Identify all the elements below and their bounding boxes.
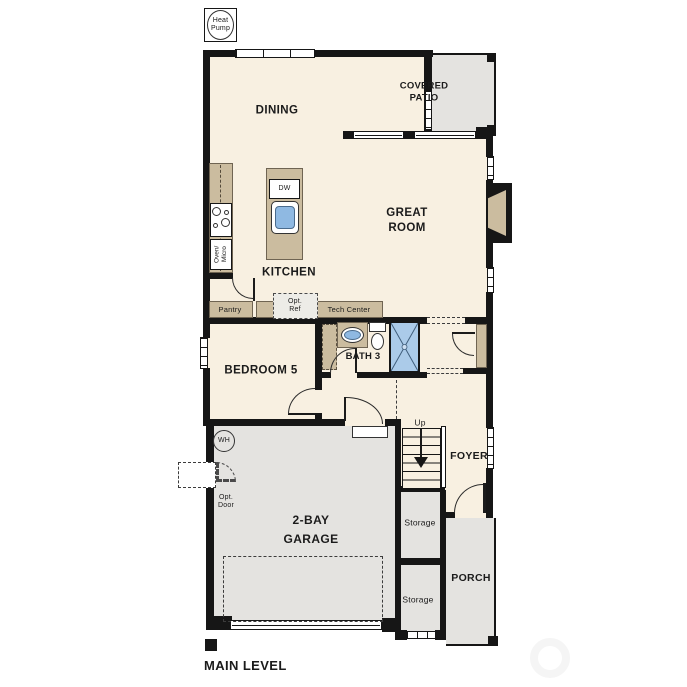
opening-greatroom-corridor (427, 317, 465, 324)
opening-hall-foyer (396, 380, 398, 419)
window-foyer (487, 427, 494, 469)
wall-garage-left (206, 426, 214, 622)
room-label-foyer: FOYER (450, 450, 488, 464)
patio-slider-left (353, 131, 404, 139)
label-dishwasher: DW (278, 185, 290, 193)
wall-corridor-right (463, 368, 488, 374)
room-label-bath-3: BATH 3 (346, 351, 381, 363)
room-label-garage: 2-BAY GARAGE (283, 511, 338, 549)
room-label-storage-lower: Storage (402, 594, 433, 605)
room-label-kitchen: KITCHEN (262, 266, 316, 281)
toilet-tank (369, 322, 386, 332)
wall-right-c (486, 292, 493, 428)
wall-left-lower (203, 368, 210, 426)
room-label-storage-upper: Storage (404, 517, 435, 528)
stairs-arrow-head (414, 457, 428, 468)
burner-2 (224, 210, 229, 215)
wall-slider-stub-mid (404, 131, 414, 139)
patio-post-top-right (487, 53, 496, 62)
burner-3 (213, 223, 218, 228)
label-tech-center: Tech Center (328, 305, 371, 315)
stairs-arrow-shaft (420, 428, 422, 459)
title-square (205, 639, 217, 651)
patio-slider-right (414, 131, 476, 139)
wall-right-a (486, 133, 493, 157)
porch-post (488, 636, 498, 646)
shower (389, 321, 420, 373)
wall-stair-west (395, 419, 401, 640)
room-label-covered-patio: COVERED PATIO (400, 81, 448, 106)
burner-1 (212, 207, 221, 216)
wall-hall-south-a (203, 419, 345, 426)
label-water-heater: WH (218, 437, 230, 445)
label-stairs-up: Up (414, 417, 425, 428)
oven-micro: Oven/ Micro (210, 239, 232, 270)
wall-pantry-stub (209, 273, 233, 279)
garage-parking-outline (223, 556, 383, 622)
wall-bedroom-bath (315, 317, 322, 374)
entry-closet-builtin (476, 324, 487, 368)
wall-storage-divider (395, 558, 445, 565)
label-heat-pump: Heat Pump (211, 17, 230, 33)
room-label-bedroom-5: BEDROOM 5 (224, 364, 297, 379)
pantry-door-leaf (253, 278, 255, 301)
watermark-circle (530, 638, 570, 678)
floor-plan: Oven/ Micro (0, 0, 687, 687)
shower-glass-marks (391, 323, 418, 371)
wall-bath-south-a (317, 372, 331, 378)
wall-bottom-b (435, 630, 446, 640)
wall-garage-stub-right (382, 618, 397, 632)
room-label-great-room: GREAT ROOM (386, 206, 427, 236)
window-greatroom-lower (487, 267, 494, 293)
wall-right-d (486, 468, 493, 518)
island-sink-basin (275, 206, 295, 229)
toilet-bowl (371, 333, 384, 350)
burner-4 (221, 218, 230, 227)
stair-railing (441, 426, 446, 488)
wall-mid-right (465, 317, 488, 324)
front-door-leaf (483, 483, 486, 513)
label-opt-door: Opt. Door (218, 494, 234, 510)
opening-corridor-hall (427, 368, 463, 374)
bath-sink-basin (344, 330, 361, 340)
optional-door-swing-outside (178, 462, 216, 488)
room-label-dining: DINING (256, 104, 299, 119)
window-greatroom-upper (487, 156, 494, 180)
label-pantry: Pantry (219, 305, 242, 315)
label-opt-ref: Opt. Ref (288, 298, 302, 314)
window-bedroom-left (200, 337, 208, 369)
window-storage-bottom (406, 631, 436, 639)
window-dining-top (235, 49, 315, 58)
garage-step (352, 426, 388, 438)
room-label-porch: PORCH (451, 572, 490, 586)
plan-title: MAIN LEVEL (204, 658, 287, 675)
